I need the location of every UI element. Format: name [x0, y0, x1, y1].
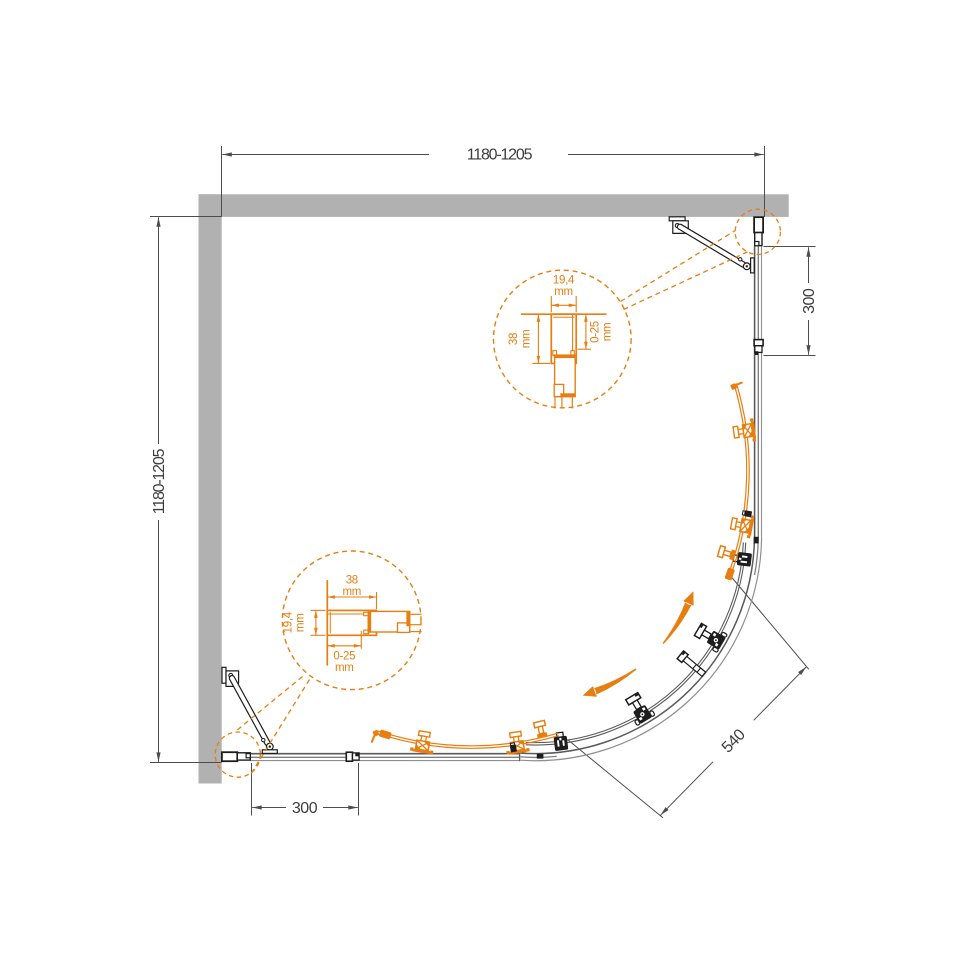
svg-text:300: 300: [801, 288, 818, 314]
svg-text:38: 38: [346, 575, 358, 587]
svg-text:mm: mm: [343, 586, 362, 598]
svg-text:1180-1205: 1180-1205: [467, 147, 533, 164]
svg-text:mm: mm: [554, 286, 573, 298]
svg-text:38: 38: [508, 333, 520, 345]
svg-text:mm: mm: [521, 330, 533, 349]
svg-text:mm: mm: [335, 662, 354, 674]
svg-text:19,4: 19,4: [553, 275, 575, 287]
svg-text:1180-1205: 1180-1205: [151, 448, 168, 514]
svg-text:0-25: 0-25: [590, 321, 602, 343]
svg-text:19,4: 19,4: [283, 611, 295, 633]
svg-text:0-25: 0-25: [333, 651, 355, 663]
svg-text:300: 300: [292, 800, 318, 817]
svg-text:mm: mm: [295, 614, 307, 633]
svg-text:mm: mm: [602, 323, 614, 342]
